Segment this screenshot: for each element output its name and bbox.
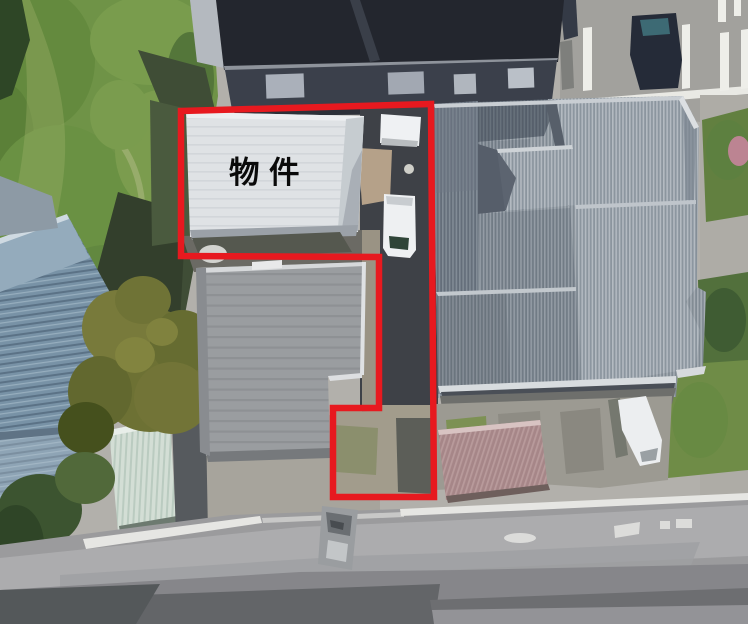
svg-text:物 件: 物 件 <box>229 156 300 190</box>
